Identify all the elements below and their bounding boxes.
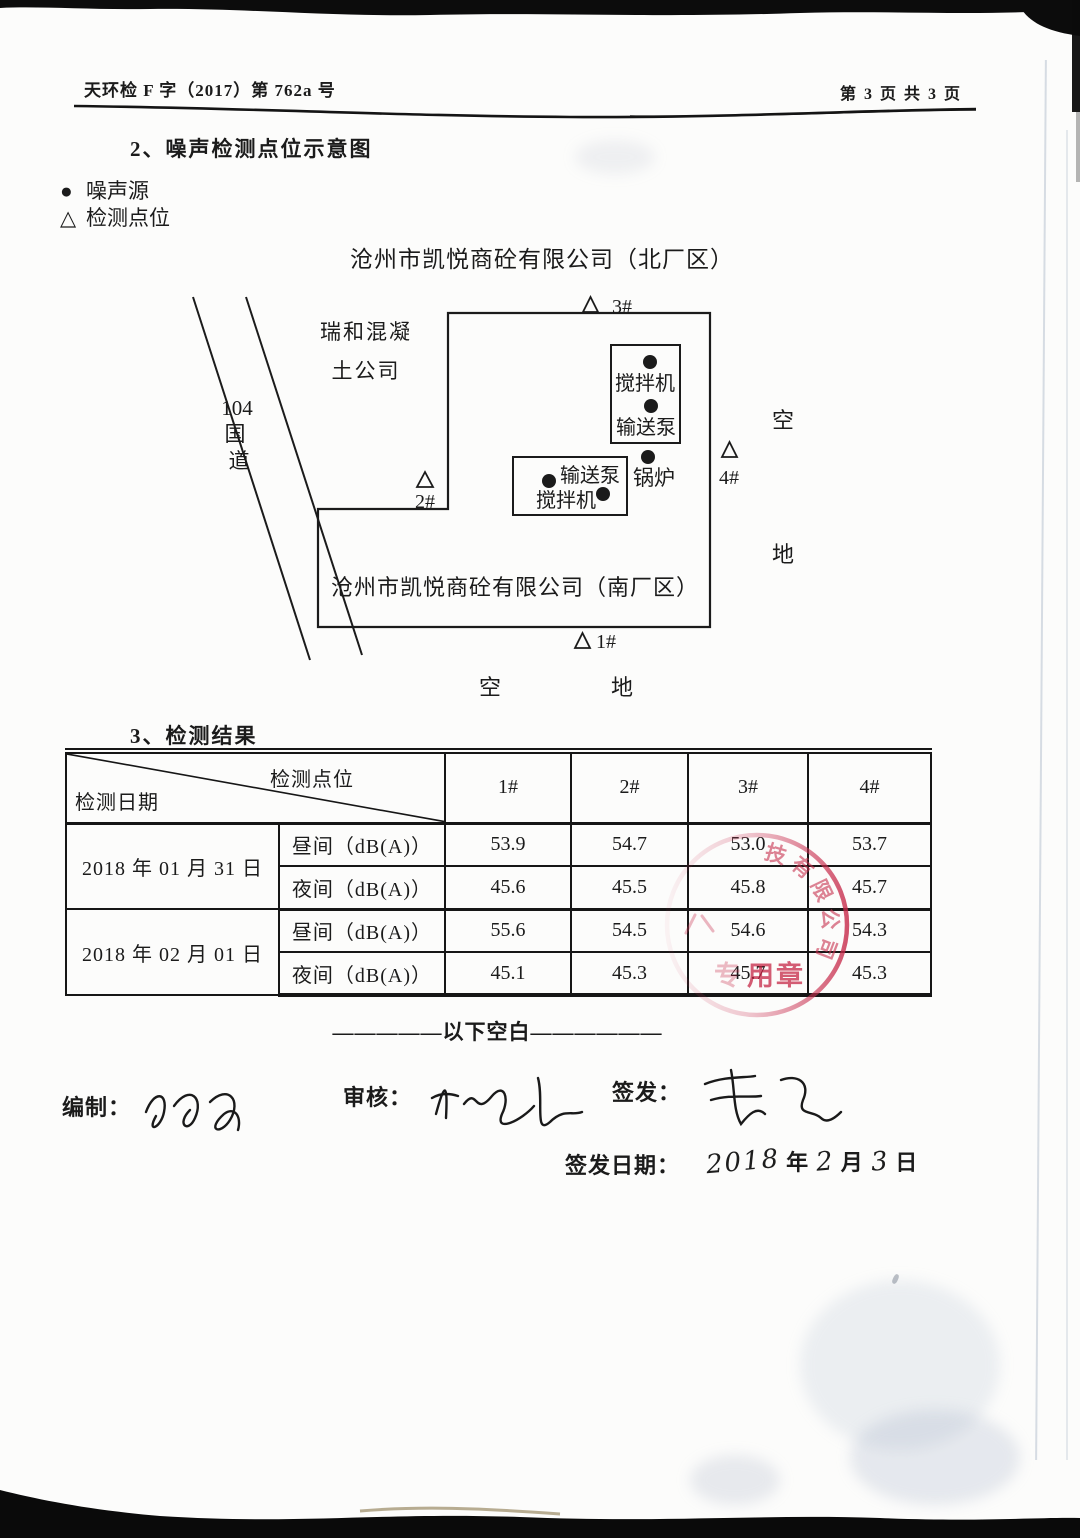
noise-source-dot	[643, 355, 657, 369]
company-stamp: 技有限公司 用章 专	[640, 820, 880, 1032]
period-cell: 夜间（dB(A)）	[279, 866, 445, 909]
day-char: 日	[895, 1150, 919, 1175]
north-factory-title: 沧州市凯悦商砼有限公司（北厂区）	[350, 247, 734, 272]
period-cell: 夜间（dB(A)）	[279, 952, 445, 995]
reviewed-signature	[422, 1062, 587, 1152]
detection-point-1-triangle	[575, 633, 590, 648]
site-diagram: 沧州市凯悦商砼有限公司（北厂区） 104 国 道 瑞和混凝 土公司 3# 搅拌机…	[0, 235, 1080, 715]
noise-source-dot	[644, 399, 658, 413]
neighbor-company-line1: 瑞和混凝	[320, 320, 412, 344]
road-char2-label: 道	[229, 449, 250, 473]
year-char: 年	[786, 1150, 810, 1175]
corner-label-points: 检测点位	[270, 763, 354, 792]
issued-label: 签发：	[612, 1075, 681, 1107]
date-cell: 2018 年 01 月 31 日	[66, 823, 279, 909]
point-header-2: 2#	[571, 751, 688, 823]
date-cell: 2018 年 02 月 01 日	[66, 909, 279, 995]
reviewed-label: 审核：	[343, 1080, 412, 1112]
stamp-faded-strokes	[686, 915, 713, 933]
pump-north-label: 输送泵	[616, 416, 676, 439]
pump-south-label: 输送泵	[560, 464, 620, 487]
stamp-arc-text: 技有限公司	[762, 840, 842, 968]
value-cell: 55.6	[445, 909, 571, 952]
open-right-bottom-label: 地	[772, 542, 794, 567]
detection-point-4-triangle	[722, 442, 737, 457]
point-header-3: 3#	[688, 751, 808, 823]
south-factory-label: 沧州市凯悦商砼有限公司（南厂区）	[331, 575, 699, 600]
prepared-signature	[138, 1072, 263, 1162]
detection-point-3-triangle	[583, 297, 598, 312]
issue-date-month-handwritten: 2	[815, 1146, 836, 1178]
detection-point-2-label: 2#	[415, 491, 435, 513]
value-cell: 53.9	[445, 823, 571, 866]
mixer-north-label: 搅拌机	[615, 372, 675, 395]
value-cell: 45.6	[445, 866, 571, 909]
stamp-bottom-text: 用章	[747, 960, 805, 991]
stamp-faded-char: 专	[714, 961, 741, 991]
corner-label-date: 检测日期	[75, 786, 159, 815]
open-bottom-left-label: 空	[479, 675, 501, 700]
issue-date-label: 签发日期：	[565, 1148, 680, 1180]
road-edge-left	[193, 297, 310, 660]
detection-point-1-label: 1#	[596, 631, 616, 653]
table-corner-cell: 检测点位 检测日期	[66, 751, 445, 823]
month-char: 月	[841, 1150, 865, 1175]
point-header-4: 4#	[808, 751, 931, 823]
open-bottom-right-label: 地	[611, 675, 633, 700]
open-right-top-label: 空	[772, 408, 794, 433]
detection-point-4-label: 4#	[719, 467, 739, 489]
legend-detection-point: △检测点位	[60, 205, 170, 232]
noise-source-dot	[641, 450, 655, 464]
point-header-1: 1#	[445, 751, 571, 823]
period-cell: 昼间（dB(A)）	[279, 823, 445, 866]
detection-point-3-label: 3#	[612, 296, 632, 318]
detection-point-2-triangle	[417, 472, 433, 487]
section3-title: 3、检测结果	[130, 720, 258, 750]
period-cell: 昼间（dB(A)）	[279, 909, 445, 952]
issue-date-day-handwritten: 3	[869, 1146, 890, 1178]
scanned-report-page: 天环检 F 字（2017）第 762a 号 第 3 页 共 3 页 2、噪声检测…	[0, 0, 1080, 1538]
neighbor-company-line2: 土公司	[332, 359, 401, 383]
value-cell: 45.1	[445, 952, 571, 995]
noise-source-dot	[596, 487, 610, 501]
road-number-label: 104	[221, 396, 253, 420]
noise-source-dot	[542, 474, 556, 488]
scan-edge-top	[0, 0, 1080, 200]
prepared-label: 编制：	[62, 1090, 131, 1122]
detection-point-triangle-icon: △	[60, 205, 86, 232]
boiler-label: 锅炉	[633, 466, 675, 490]
road-edge-right	[246, 297, 362, 655]
issue-date-value: 2018年2月3日	[700, 1145, 919, 1177]
scan-edge-bottom	[0, 1470, 1080, 1538]
road-char1-label: 国	[225, 422, 246, 446]
issue-date-year-handwritten: 2018	[705, 1144, 782, 1180]
mixer-south-label: 搅拌机	[536, 489, 596, 512]
blank-below-note: —————以下空白——————	[65, 1016, 930, 1046]
issued-signature	[697, 1058, 847, 1138]
